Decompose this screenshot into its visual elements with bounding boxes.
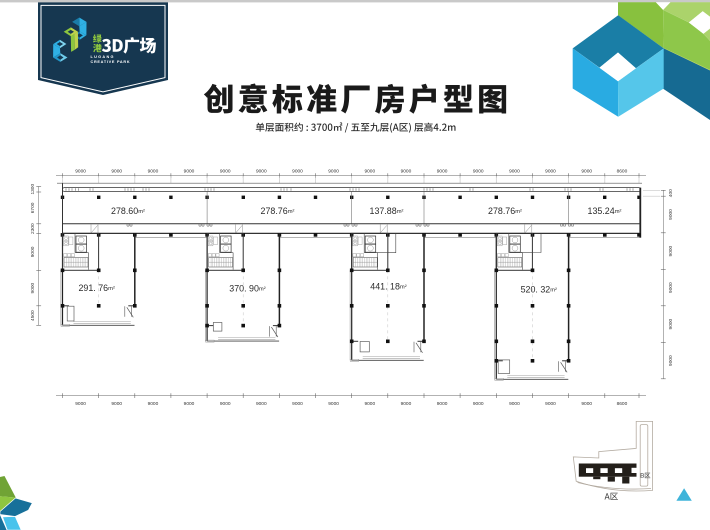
svg-text:9000: 9000: [184, 401, 195, 407]
svg-text:9000: 9000: [473, 168, 484, 174]
svg-text:LUGANG: LUGANG: [91, 55, 115, 59]
svg-text:9000: 9000: [401, 401, 412, 407]
svg-text:9000: 9000: [111, 168, 122, 174]
svg-text:9000: 9000: [668, 318, 674, 329]
svg-text:9000: 9000: [111, 401, 122, 407]
svg-text:9000: 9000: [545, 401, 556, 407]
svg-text:9000: 9000: [364, 168, 375, 174]
svg-text:9000: 9000: [668, 245, 674, 256]
svg-text:9000: 9000: [292, 168, 303, 174]
svg-text:9000: 9000: [668, 282, 674, 293]
svg-text:9000: 9000: [473, 401, 484, 407]
svg-text:9000: 9000: [509, 168, 520, 174]
svg-text:9000: 9000: [581, 401, 592, 407]
svg-text:9000: 9000: [328, 401, 339, 407]
svg-text:8600: 8600: [617, 168, 628, 174]
svg-text:9000: 9000: [328, 168, 339, 174]
svg-text:9000: 9000: [581, 168, 592, 174]
svg-text:2300: 2300: [30, 223, 36, 234]
svg-text:6700: 6700: [30, 202, 36, 213]
svg-text:9000: 9000: [30, 246, 36, 257]
svg-text:9000: 9000: [220, 168, 231, 174]
svg-text:9000: 9000: [437, 401, 448, 407]
svg-text:9000: 9000: [292, 401, 303, 407]
svg-text:9000: 9000: [401, 168, 412, 174]
svg-text:9000: 9000: [148, 401, 159, 407]
svg-text:9000: 9000: [30, 282, 36, 293]
svg-text:9000: 9000: [364, 401, 375, 407]
svg-text:9000: 9000: [545, 168, 556, 174]
svg-text:4500: 4500: [30, 310, 36, 321]
svg-text:9000: 9000: [220, 401, 231, 407]
svg-text:CREATIVE PARK: CREATIVE PARK: [91, 60, 131, 64]
svg-text:9000: 9000: [184, 168, 195, 174]
svg-text:400: 400: [668, 189, 674, 197]
svg-text:9000: 9000: [256, 168, 267, 174]
svg-text:9000: 9000: [437, 168, 448, 174]
svg-text:8600: 8600: [617, 401, 628, 407]
svg-text:9000: 9000: [668, 355, 674, 366]
svg-text:9000: 9000: [256, 401, 267, 407]
svg-text:9000: 9000: [668, 209, 674, 220]
svg-text:9000: 9000: [75, 168, 86, 174]
svg-text:9000: 9000: [148, 168, 159, 174]
svg-text:9000: 9000: [509, 401, 520, 407]
svg-text:9000: 9000: [75, 401, 86, 407]
svg-text:1300: 1300: [30, 184, 36, 195]
